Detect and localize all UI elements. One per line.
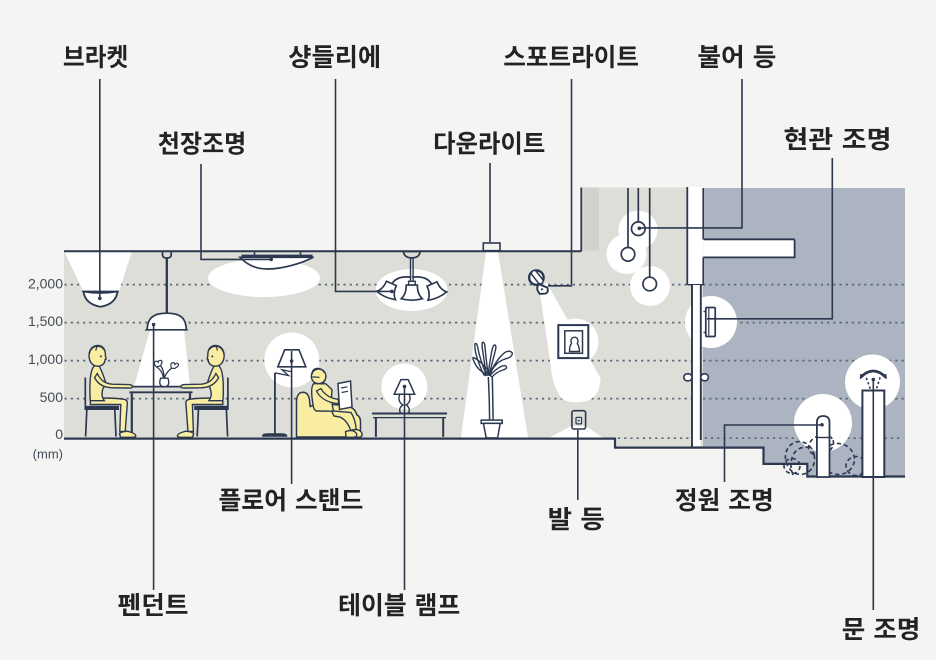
svg-text:500: 500	[40, 389, 64, 405]
svg-text:1,000: 1,000	[28, 351, 63, 367]
svg-text:0: 0	[55, 426, 63, 442]
svg-text:(mm): (mm)	[33, 447, 63, 462]
svg-text:2,000: 2,000	[28, 275, 63, 291]
svg-text:1,500: 1,500	[28, 313, 63, 329]
